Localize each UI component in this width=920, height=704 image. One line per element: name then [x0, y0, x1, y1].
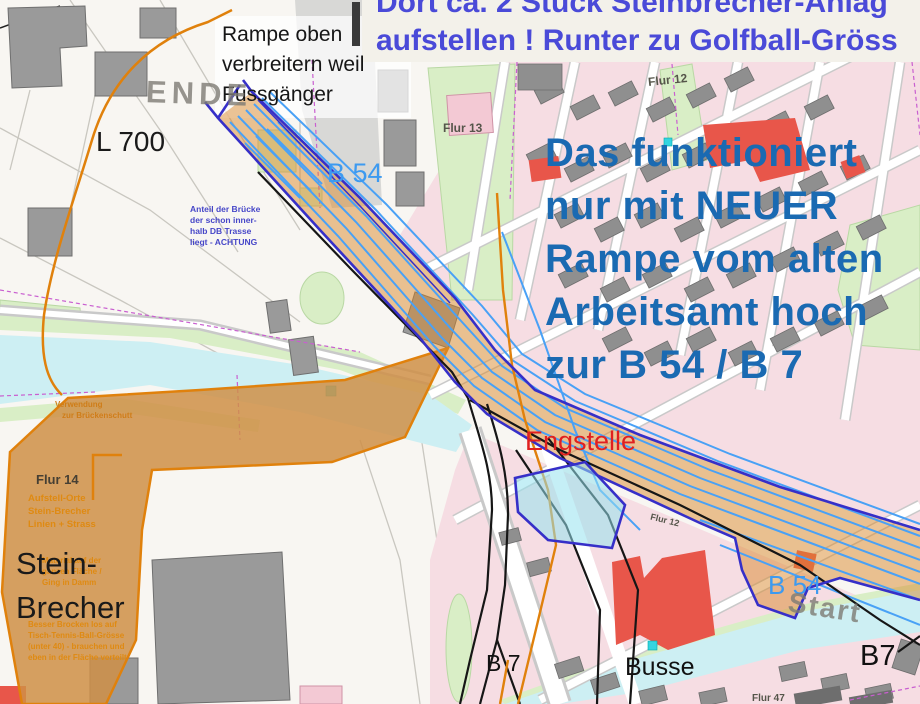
- b7-east-label: B7: [860, 642, 895, 671]
- engstelle-label: Engstelle: [525, 428, 636, 455]
- aufstell-note-line3: Linien + Strass: [28, 520, 96, 531]
- bridge-note-line1: Anteil der Brücke: [190, 204, 260, 215]
- b7-south-label: B 7: [486, 652, 521, 675]
- l700-label: L 700: [96, 128, 165, 156]
- bridge-note-line4: liegt - ACHTUNG: [190, 237, 257, 248]
- brocken-note-line3: (unter 40) - brauchen und: [28, 642, 124, 653]
- ramp-note-line1: Rampe oben: [222, 24, 342, 45]
- bridge-note-line2: der schon inner-: [190, 215, 257, 226]
- main-note-line4: Arbeitsamt hoch: [545, 292, 868, 332]
- flur14-label: Flur 14: [36, 473, 79, 486]
- ende-watermark: ENDE: [145, 76, 252, 111]
- steinbrecher-label-line1: Stein-: [16, 548, 97, 579]
- flur13-label: Flur 13: [443, 122, 482, 134]
- ramp-note-line2: verbreitern weil: [222, 54, 364, 75]
- b54-top-label: B 54: [327, 160, 383, 187]
- dark-bar: [352, 2, 360, 46]
- verwendung-note-line2: zur Brückenschutt: [62, 411, 132, 422]
- banner-line1: Dort ca. 2 Stück Steinbrecher-Anlag: [376, 0, 888, 20]
- aufstell-note-line1: Aufstell-Orte: [28, 494, 86, 505]
- verwendung-note-line1: Verwendung: [55, 400, 103, 411]
- annotated-map-screenshot: Dort ca. 2 Stück Steinbrecher-Anlag aufs…: [0, 0, 920, 704]
- main-note-line2: nur mit NEUER: [545, 186, 838, 226]
- main-note-line1: Das funktioniert: [545, 133, 857, 173]
- bridge-note-line3: halb DB Trasse: [190, 226, 251, 237]
- banner-line2: aufstellen ! Runter zu Golfball-Gröss: [376, 24, 898, 58]
- busse-label: Busse: [625, 655, 694, 680]
- brocken-note-line2: Tisch-Tennis-Ball-Grösse: [28, 631, 124, 642]
- top-note-banner: Dort ca. 2 Stück Steinbrecher-Anlag aufs…: [362, 0, 920, 62]
- flur47-label: Flur 47: [752, 694, 785, 704]
- aufstell-note-line2: Stein-Brecher: [28, 507, 90, 518]
- main-note-line3: Rampe vom alten: [545, 239, 884, 279]
- steinbrecher-label-line2: Brecher: [16, 592, 125, 623]
- brocken-note-line4: eben in der Fläche verteilt: [28, 653, 127, 664]
- main-note-line5: zur B 54 / B 7: [545, 345, 803, 385]
